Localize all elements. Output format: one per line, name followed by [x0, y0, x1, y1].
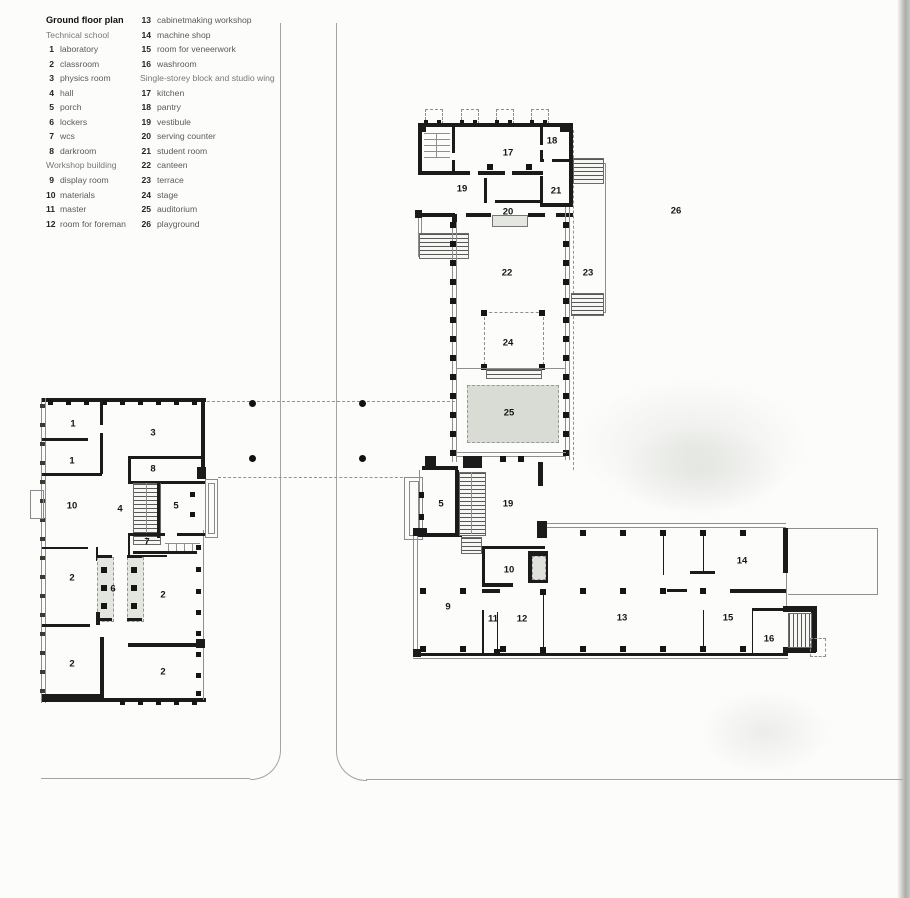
room-number-labels: 1138104572622217181921202223262425519910… [0, 0, 910, 898]
room-number-classroom: 2 [69, 573, 74, 584]
room-number-display-room: 9 [445, 602, 450, 613]
scanned-floor-plan-page: Ground floor planTechnical school1labora… [0, 0, 910, 898]
room-number-kitchen: 17 [503, 148, 514, 159]
room-number-stage: 24 [503, 338, 514, 349]
room-number-classroom: 2 [160, 667, 165, 678]
room-number-classroom: 2 [160, 590, 165, 601]
room-number-washroom: 16 [764, 634, 775, 645]
room-number-terrace: 23 [583, 268, 594, 279]
room-number-materials: 10 [504, 565, 515, 576]
room-number-room-for-veneerwork: 15 [723, 613, 734, 624]
room-number-auditorium: 25 [504, 408, 515, 419]
room-number-classroom: 2 [69, 659, 74, 670]
room-number-cabinetmaking-workshop: 13 [617, 613, 628, 624]
room-number-wcs: 7 [144, 537, 149, 548]
room-number-pantry: 18 [547, 136, 558, 147]
room-number-machine-shop: 14 [737, 556, 748, 567]
room-number-room-for-foreman: 12 [517, 614, 528, 625]
room-number-playground: 26 [671, 206, 682, 217]
room-number-vestibule: 19 [503, 499, 514, 510]
room-number-serving-counter: 20 [503, 207, 514, 218]
room-number-lockers: 6 [110, 584, 115, 595]
room-number-student-room: 21 [551, 186, 562, 197]
room-number-porch: 5 [173, 501, 178, 512]
room-number-canteen: 22 [502, 268, 513, 279]
room-number-hall: 4 [117, 504, 122, 515]
room-number-vestibule: 19 [457, 184, 468, 195]
room-number-master: 11 [488, 614, 498, 625]
room-number-materials: 10 [67, 501, 78, 512]
room-number-darkroom: 8 [150, 464, 155, 475]
room-number-porch: 5 [438, 499, 443, 510]
room-number-laboratory: 1 [69, 456, 74, 467]
page-edge-shadow [897, 0, 910, 898]
room-number-physics-room: 3 [150, 428, 155, 439]
room-number-laboratory: 1 [70, 419, 75, 430]
